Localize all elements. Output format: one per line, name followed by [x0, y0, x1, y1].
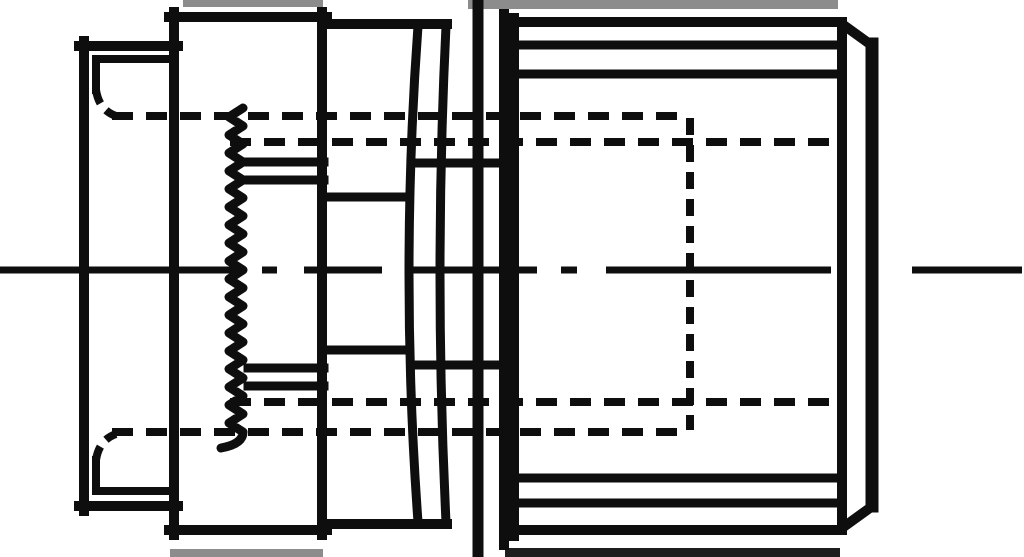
bottom-cut-band-left: [170, 549, 323, 557]
drawing-canvas: [0, 0, 1024, 557]
technical-drawing-fitting-side-view: [0, 0, 1024, 557]
top-cut-band-right: [468, 0, 838, 9]
bottom-cut-band-right: [505, 548, 840, 557]
top-cut-band-left: [183, 0, 323, 7]
